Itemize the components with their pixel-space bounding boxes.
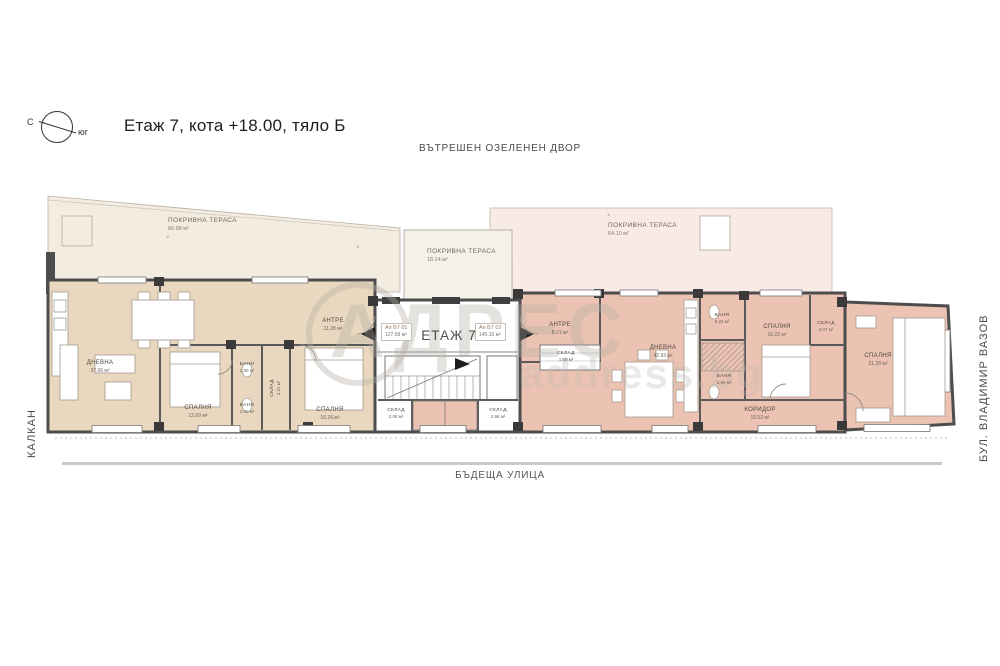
room-label: БАНЯ5.22 м² xyxy=(715,313,730,325)
compass-north-label: С xyxy=(27,117,34,127)
survey-mark: × xyxy=(166,235,170,241)
room-label: СПАЛНЯ21.28 м² xyxy=(864,353,891,367)
room-label: АНТРЕ11.28 м² xyxy=(322,318,344,332)
room-label: ДНЕВНА37.06 м² xyxy=(87,360,114,374)
room-label: БАНЯ3.99 м² xyxy=(717,374,732,386)
context-right-label: БУЛ. ВЛАДИМИР ВАЗОВ xyxy=(978,315,990,462)
room-label: СКЛАД3.07 м² xyxy=(817,321,835,333)
street-line xyxy=(62,462,942,465)
room-label: ДНЕВНА42.93 м² xyxy=(650,345,677,359)
terrace-center-shape xyxy=(404,230,512,300)
compass-south-label: юг xyxy=(78,127,88,137)
room-label: БАНЯ2.90 м² xyxy=(240,362,255,374)
room-label: СКЛАД2.06 м² xyxy=(387,408,405,420)
context-bottom-label: БЪДЕЩА УЛИЦА xyxy=(0,470,1000,481)
room-label: КОРИДОР10.52 м² xyxy=(744,407,775,421)
room-label: СКЛАД3.31 м² xyxy=(270,379,282,397)
room-label: СПАЛНЯ16.26 м² xyxy=(316,407,343,421)
room-label: АНТРЕ8.21 м² xyxy=(549,322,571,336)
room-label: БАНЯ3.00 м² xyxy=(240,403,255,415)
room-label: СКЛАД1.59 м² xyxy=(557,351,575,363)
context-top-label: ВЪТРЕШЕН ОЗЕЛЕНЕН ДВОР xyxy=(0,143,1000,154)
survey-mark: × xyxy=(607,213,611,219)
room-label: СПАЛНЯ16.22 м² xyxy=(763,324,790,338)
floor-label: ЕТАЖ 7 xyxy=(421,328,477,343)
room-label: СКЛАД2.98 м² xyxy=(489,408,507,420)
apartment2-info-box: Ап Б7 02 145.33 м² xyxy=(475,323,506,341)
compass-icon xyxy=(39,112,76,143)
floorplan-page: АДРЕС address.bg С юг Етаж 7, кота +18.0… xyxy=(0,0,1000,666)
page-title: Етаж 7, кота +18.00, тяло Б xyxy=(124,116,346,136)
survey-mark: × xyxy=(356,245,360,251)
terrace-center-label: ПОКРИВНА ТЕРАСА 18.24 м² xyxy=(427,248,496,264)
terrace-right-label: ПОКРИВНА ТЕРАСА 64.10 м² xyxy=(608,222,677,238)
terrace-left-label: ПОКРИВНА ТЕРАСА 66.98 м² xyxy=(168,217,237,233)
room-label: СПАЛНЯ12.69 м² xyxy=(184,405,211,419)
apartment1-info-box: Ап Б7 01 127.58 м² xyxy=(381,323,412,341)
context-left-label: КАЛКАН xyxy=(26,409,38,458)
